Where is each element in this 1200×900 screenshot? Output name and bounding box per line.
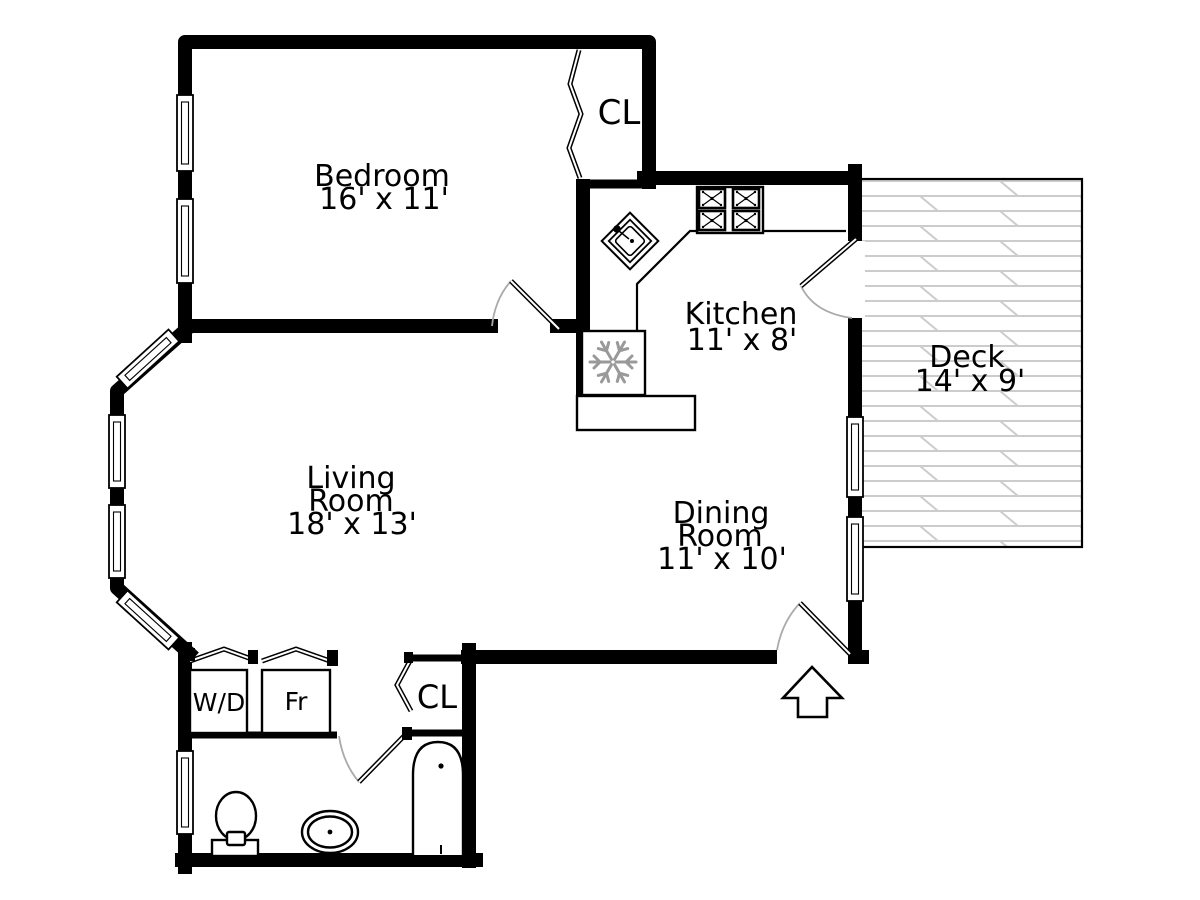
entry-arrow-icon <box>783 667 842 717</box>
bay-window-left-2 <box>109 505 125 578</box>
exterior-walls <box>117 42 862 867</box>
closet-bottom-label: CL <box>417 678 457 716</box>
toilet-icon <box>212 792 258 856</box>
bay-window-left-1 <box>109 415 125 488</box>
kitchen-dimensions: 11' x 8' <box>687 323 798 358</box>
bathtub-icon <box>413 742 463 855</box>
kitchen-cabinet <box>577 396 695 430</box>
bay-window-lower-angled <box>117 591 180 650</box>
dining-room-dimensions: 11' x 10' <box>657 542 787 577</box>
washer-dryer-label: W/D <box>193 688 245 717</box>
bedroom-door <box>492 281 559 329</box>
floor-plan: Bedroom 16' x 11' CL Kitchen 11' x 8' De… <box>0 0 1200 900</box>
bathroom-window <box>177 751 193 834</box>
bedroom-dimensions: 16' x 11' <box>319 182 449 217</box>
dining-window-2 <box>847 517 863 601</box>
bathroom-fixtures <box>212 742 463 856</box>
kitchen-deck-door-opening <box>846 241 865 318</box>
bay-window-upper-angled <box>117 330 180 389</box>
closet-top-label: CL <box>598 93 641 133</box>
entry-door-opening <box>777 647 848 666</box>
entry-door <box>777 603 850 654</box>
floor-plan-drawing: Bedroom 16' x 11' CL Kitchen 11' x 8' De… <box>0 0 1200 900</box>
bathroom-sink-icon <box>302 811 358 853</box>
laundry-bifold-doors <box>186 648 338 666</box>
bedroom-window-2 <box>177 199 193 283</box>
bathroom-door <box>339 733 407 782</box>
closet-bottom-bifold-door <box>397 652 413 740</box>
closet-top-bifold-door <box>569 50 581 178</box>
deck-dimensions: 14' x 9' <box>915 364 1026 399</box>
bedroom-window-1 <box>177 95 193 171</box>
fridge-label: Fr <box>285 687 309 716</box>
dining-window-1 <box>847 417 863 497</box>
living-room-dimensions: 18' x 13' <box>287 507 417 542</box>
kitchen-sink-icon <box>602 213 659 270</box>
